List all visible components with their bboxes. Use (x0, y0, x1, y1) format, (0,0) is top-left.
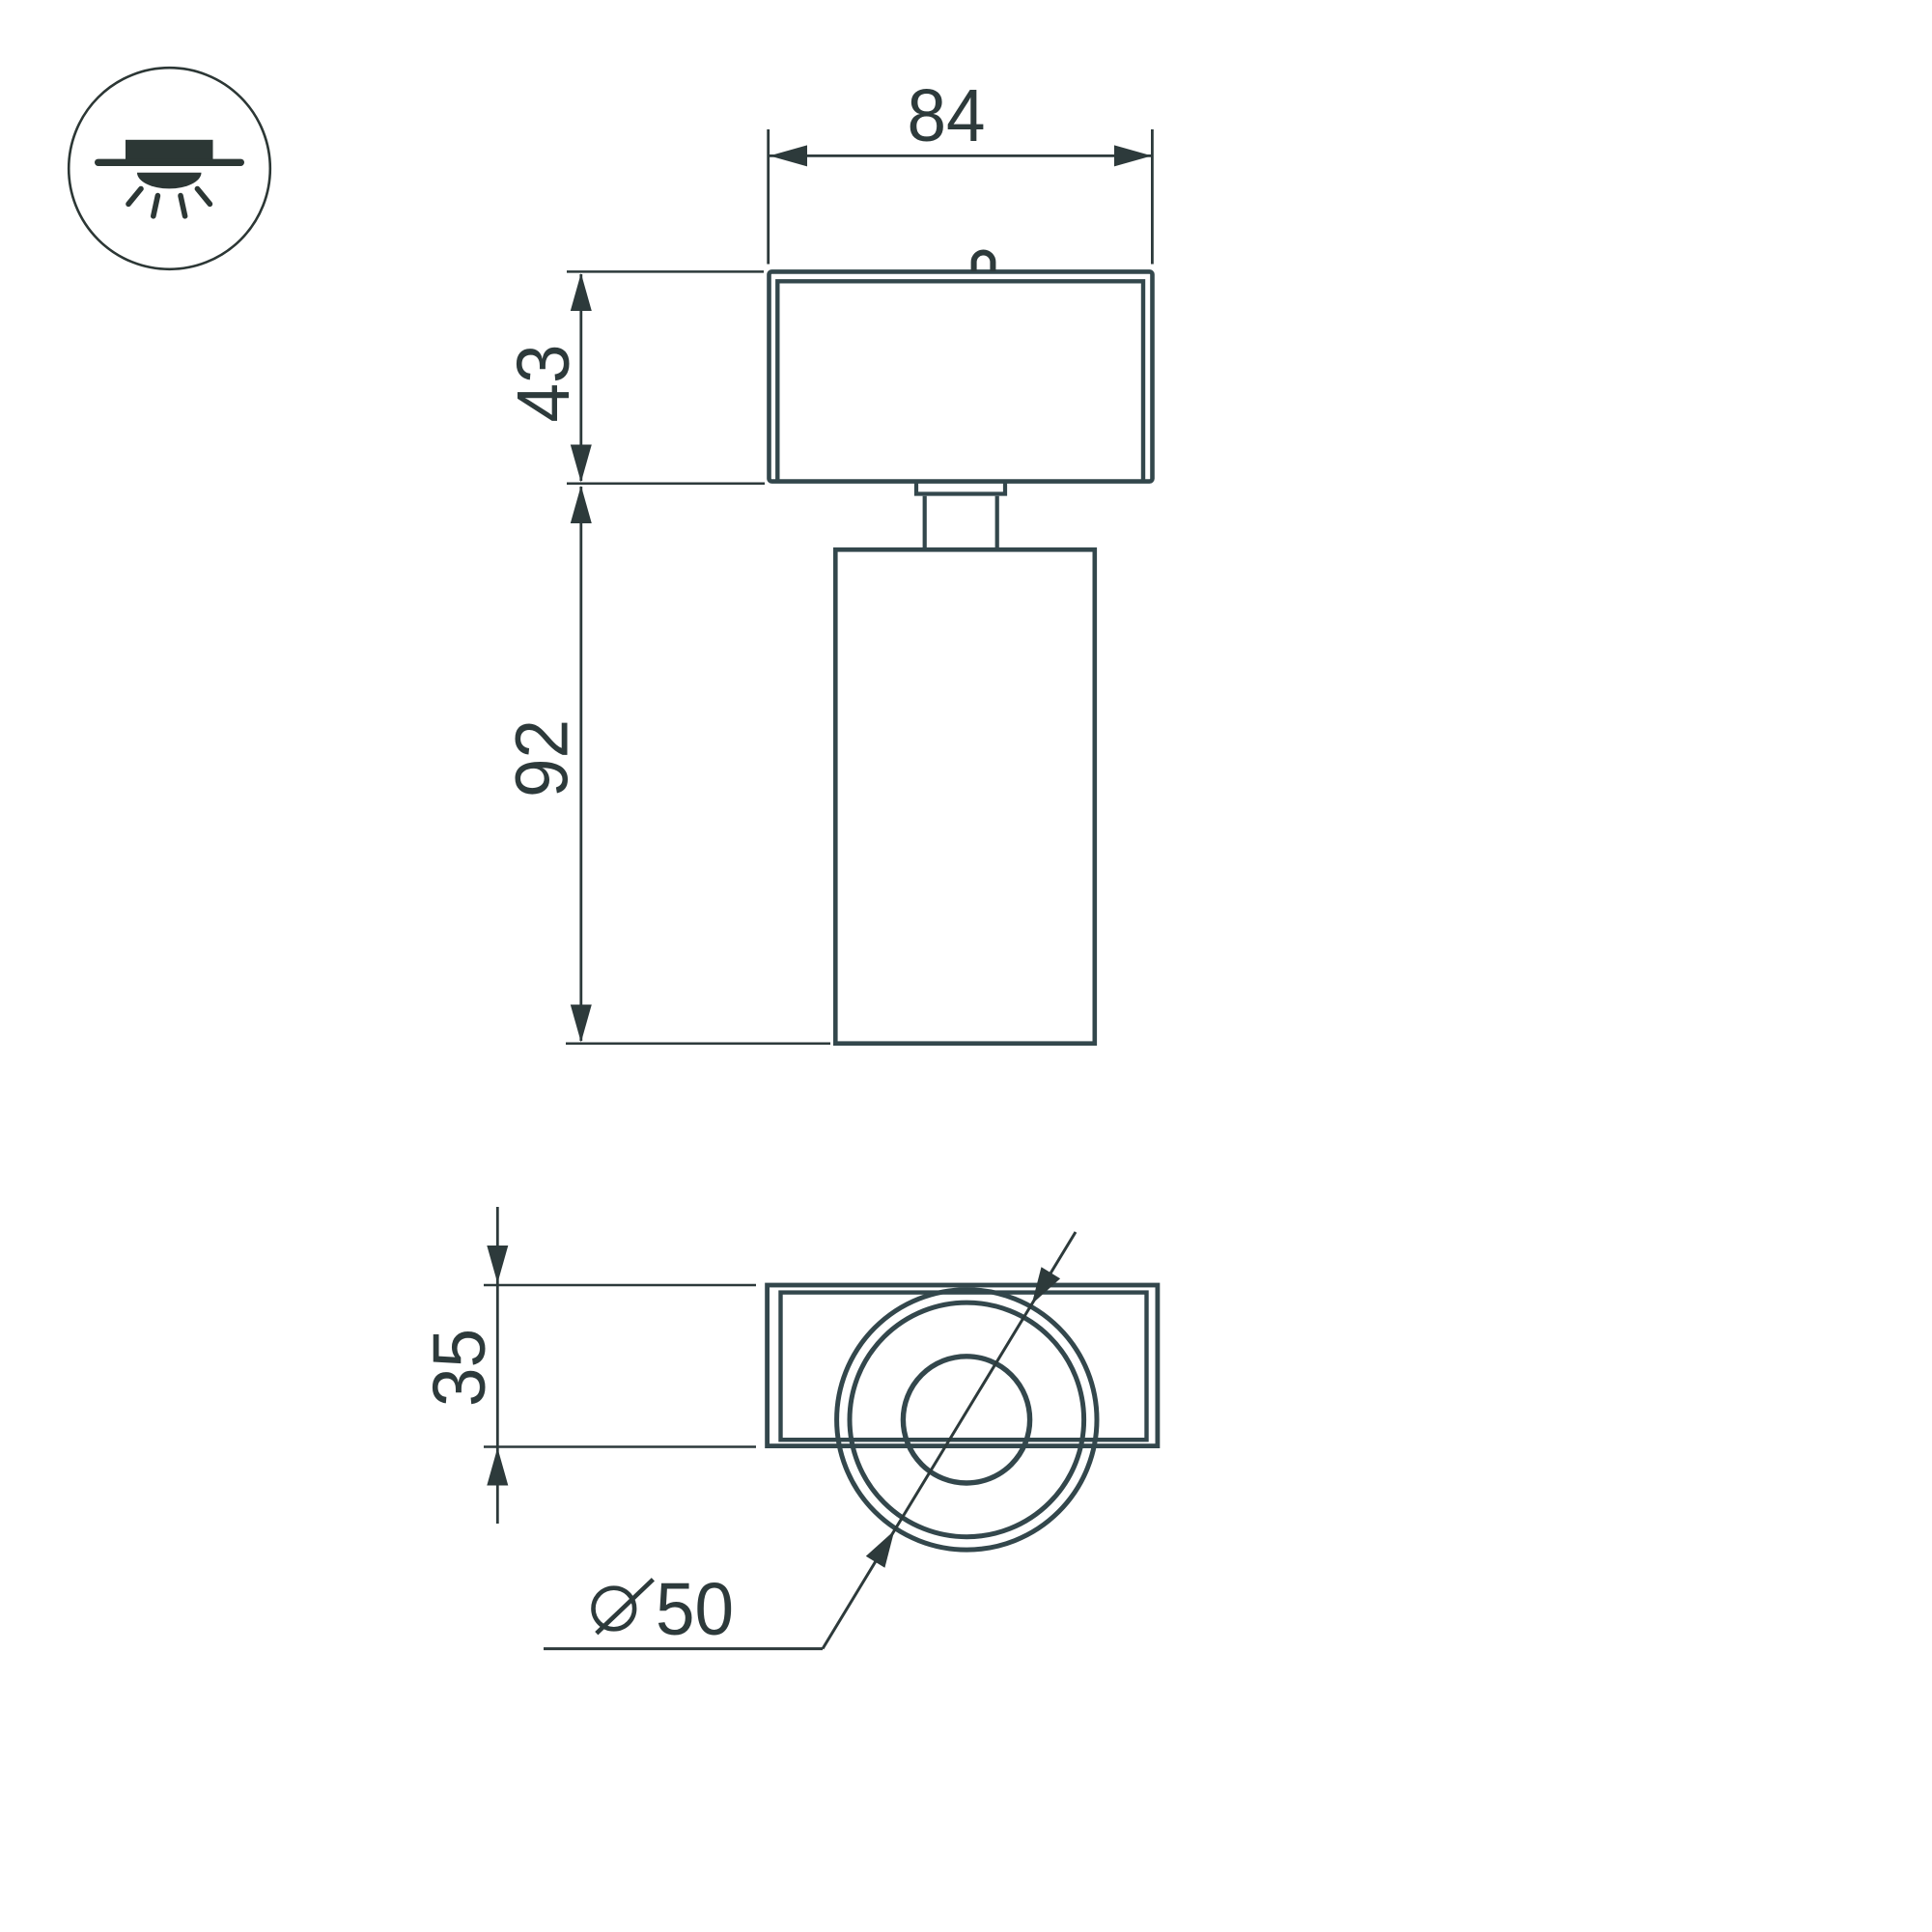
svg-text:84: 84 (908, 74, 986, 157)
svg-text:43: 43 (502, 345, 585, 423)
svg-text:92: 92 (501, 719, 584, 798)
svg-text:35: 35 (418, 1329, 501, 1407)
svg-text:50: 50 (656, 1568, 734, 1651)
